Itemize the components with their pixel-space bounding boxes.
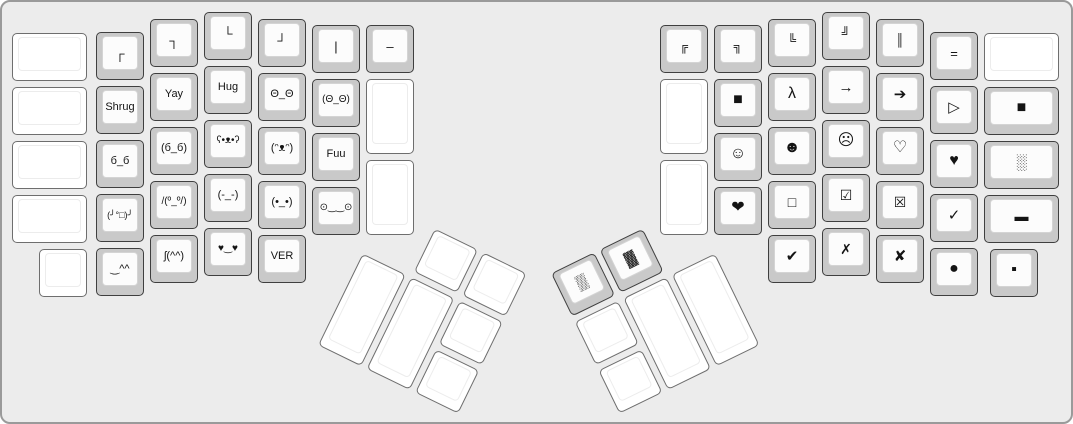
- key-heart-eyes[interactable]: ♥‿♥: [204, 228, 252, 276]
- key-square-white[interactable]: □: [768, 181, 816, 229]
- keycap-legend: ╝: [842, 27, 851, 39]
- keycap-top: ☹: [828, 124, 864, 158]
- key-neutral-face[interactable]: (•_•): [258, 181, 306, 229]
- key-equals[interactable]: =: [930, 32, 978, 80]
- keycap-top: (-_-): [210, 178, 246, 212]
- keycap-top: ┌: [102, 36, 138, 70]
- key-hug[interactable]: Hug: [204, 66, 252, 114]
- key-blank[interactable]: [12, 87, 87, 135]
- key-double-corner-top-right[interactable]: ╗: [714, 25, 762, 73]
- key-blank[interactable]: [39, 249, 87, 297]
- keycap-top: [45, 253, 81, 287]
- keycap-top: (ᵔᴥᵔ): [264, 131, 300, 165]
- keycap-top: λ: [774, 77, 810, 111]
- keycap-legend: ░: [1016, 155, 1027, 170]
- key-double-corner-bottom-left[interactable]: ╚: [768, 19, 816, 67]
- key-yay[interactable]: Yay: [150, 73, 198, 121]
- keycap-top: (•_•): [264, 185, 300, 219]
- keycap-top: |: [318, 29, 354, 63]
- keyboard-canvas: ┌Shrugб_б(╯°□)╯‿^^┐Yay(б_б)/(º_º/)ʃ(^^)└…: [0, 0, 1073, 424]
- key-blank[interactable]: [12, 141, 87, 189]
- keycap-top: /(º_º/): [156, 185, 192, 219]
- key-blank[interactable]: [366, 79, 414, 154]
- keycap-legend: ☺: [730, 146, 746, 162]
- keycap-top: Yay: [156, 77, 192, 111]
- keycap-top: ⊙‿‿⊙: [318, 191, 354, 225]
- key-double-corner-top-left[interactable]: ╔: [660, 25, 708, 73]
- key-black-square[interactable]: ■: [714, 79, 762, 127]
- keycap-top: [606, 356, 653, 402]
- keycap-top: [18, 91, 81, 125]
- key-worried-face[interactable]: ⊙‿‿⊙: [312, 187, 360, 235]
- key-black-square-2[interactable]: ■: [984, 87, 1059, 135]
- keycap-top: ✗: [828, 232, 864, 266]
- key-blank[interactable]: [12, 33, 87, 81]
- keycap-top: ╝: [828, 16, 864, 50]
- keycap-legend: (б_б): [161, 143, 187, 154]
- key-shrug-face[interactable]: ʃ(^^): [150, 235, 198, 283]
- keycap-legend: ╚: [788, 34, 797, 46]
- keycap-legend: Yay: [165, 89, 183, 100]
- keycap-top: ▬: [990, 199, 1053, 233]
- keycap-legend: ┌: [115, 47, 124, 60]
- keycap-legend: ʃ(^^): [164, 251, 184, 262]
- keycap-top: →: [828, 70, 864, 104]
- keycap-legend: →: [839, 80, 854, 95]
- key-stare-face-parens[interactable]: (Θ_Θ): [312, 79, 360, 127]
- key-happy-bear[interactable]: (ᵔᴥᵔ): [258, 127, 306, 175]
- key-table-unflip[interactable]: /(º_º/): [150, 181, 198, 229]
- keycap-legend: /(º_º/): [161, 197, 186, 207]
- keycap-top: (╯°□)╯: [102, 198, 138, 232]
- keycap-top: ➔: [882, 77, 918, 111]
- keycap-top: [472, 259, 519, 305]
- key-square-small-black[interactable]: ▪: [990, 249, 1038, 297]
- key-heart-heavy[interactable]: ❤: [714, 187, 762, 235]
- keycap-legend: =: [950, 47, 958, 60]
- key-shade-light[interactable]: ░: [984, 141, 1059, 189]
- keycap-top: ☺: [720, 137, 756, 171]
- keycap-legend: VER: [271, 251, 294, 262]
- keycap-top: ╚: [774, 23, 810, 57]
- keycap-legend: ☹: [838, 133, 855, 149]
- key-blank[interactable]: [660, 79, 708, 154]
- keycap-top: Θ_Θ: [264, 77, 300, 111]
- key-double-vertical[interactable]: ║: [876, 19, 924, 67]
- key-x-heavy[interactable]: ✘: [876, 235, 924, 283]
- key-corner-bottom-left[interactable]: └: [204, 12, 252, 60]
- keycap-top: Hug: [210, 70, 246, 104]
- keycap-top: [582, 307, 629, 353]
- keycap-legend: ▬: [1015, 209, 1029, 223]
- keycap-legend: ╔: [680, 40, 689, 52]
- key-smiley-black[interactable]: ☻: [768, 127, 816, 175]
- keycap-top: Fuu: [318, 137, 354, 171]
- keycap-top: [990, 37, 1053, 71]
- key-corner-top-left[interactable]: ┌: [96, 32, 144, 80]
- keycap-top: [666, 83, 702, 144]
- keycap-top: ░: [990, 145, 1053, 179]
- key-shrug[interactable]: Shrug: [96, 86, 144, 134]
- keycap-legend: ┐: [169, 34, 178, 47]
- key-circle-black[interactable]: ●: [930, 248, 978, 296]
- keycap-top: –: [372, 29, 408, 63]
- keycap-legend: ●: [949, 261, 959, 277]
- key-version[interactable]: VER: [258, 235, 306, 283]
- key-annoyed-face[interactable]: (-_-): [204, 174, 252, 222]
- key-squint-face-parens[interactable]: (б_б): [150, 127, 198, 175]
- keycap-top: └: [210, 16, 246, 50]
- keycap-legend: (╯°□)╯: [107, 211, 133, 220]
- key-dash[interactable]: –: [366, 25, 414, 73]
- keycap-top: ■: [990, 91, 1053, 125]
- key-blank[interactable]: [12, 195, 87, 243]
- keycap-top: ☻: [774, 131, 810, 165]
- keycap-top: [372, 83, 408, 144]
- key-corner-bottom-right[interactable]: ┘: [258, 19, 306, 67]
- key-fuu[interactable]: Fuu: [312, 133, 360, 181]
- key-lambda[interactable]: λ: [768, 73, 816, 121]
- key-vertical-bar[interactable]: |: [312, 25, 360, 73]
- keycap-legend: ▪: [1011, 262, 1017, 278]
- keycap-top: [449, 307, 496, 353]
- keycap-legend: ┘: [277, 34, 286, 47]
- key-heart-white[interactable]: ♡: [876, 127, 924, 175]
- keycap-legend: ✔: [786, 249, 799, 264]
- key-stare-face[interactable]: Θ_Θ: [258, 73, 306, 121]
- keycap-legend: ♥‿♥: [218, 244, 238, 254]
- keycap-legend: ‿^^: [110, 264, 129, 275]
- key-frown-face[interactable]: ☹: [822, 120, 870, 168]
- keycap-top: ✓: [936, 198, 972, 232]
- keycap-legend: ʕ•ᴥ•ʔ: [216, 136, 239, 146]
- keycap-top: ╗: [720, 29, 756, 63]
- keycap-top: ☒: [882, 185, 918, 219]
- keycap-top: [18, 199, 81, 233]
- key-double-corner-bottom-right[interactable]: ╝: [822, 12, 870, 60]
- key-bear-face[interactable]: ʕ•ᴥ•ʔ: [204, 120, 252, 168]
- keycap-top: [425, 356, 472, 402]
- keycap-top: VER: [264, 239, 300, 273]
- key-check[interactable]: ✓: [930, 194, 978, 242]
- keycap-top: ✘: [882, 239, 918, 273]
- keycap-top: ┐: [156, 23, 192, 57]
- keycap-top: [18, 145, 81, 179]
- keycap-legend: □: [788, 195, 796, 209]
- keycap-legend: ⊙‿‿⊙: [320, 203, 353, 213]
- keycap-top: [18, 37, 81, 71]
- keycap-legend: (•_•): [271, 197, 292, 208]
- keycap-top: ʃ(^^): [156, 239, 192, 273]
- keycap-legend: └: [223, 27, 232, 40]
- keycap-legend: ✗: [840, 242, 852, 256]
- keycap-legend: –: [386, 40, 393, 53]
- keycap-legend: Θ_Θ: [270, 89, 293, 100]
- keycap-legend: Hug: [218, 82, 238, 93]
- keycap-top: ♥‿♥: [210, 232, 246, 266]
- key-triangle-right[interactable]: ▷: [930, 86, 978, 134]
- keycap-legend: ▷: [948, 100, 960, 115]
- keycap-top: ▓: [607, 235, 654, 281]
- keycap-legend: ☒: [894, 195, 907, 209]
- keycap-top: ╔: [666, 29, 702, 63]
- keycap-top: ❤: [720, 191, 756, 225]
- keycap-legend: ☑: [840, 188, 853, 202]
- keycap-top: ▒: [558, 259, 605, 305]
- keycap-legend: (ᵔᴥᵔ): [271, 143, 293, 154]
- keycap-legend: ♥: [949, 153, 959, 169]
- keycap-top: ‿^^: [102, 252, 138, 286]
- keycap-top: (Θ_Θ): [318, 83, 354, 117]
- key-arrow-right-heavy[interactable]: ➔: [876, 73, 924, 121]
- keycap-top: ☑: [828, 178, 864, 212]
- keycap-legend: Shrug: [105, 102, 134, 113]
- keycap-top: ▷: [936, 90, 972, 124]
- keycap-legend: (-_-): [218, 190, 239, 201]
- keycap-top: ║: [882, 23, 918, 57]
- keycap-top: ●: [936, 252, 972, 286]
- keycap-top: ▪: [996, 253, 1032, 287]
- keycap-top: ♡: [882, 131, 918, 165]
- keycap-legend: ■: [733, 92, 743, 108]
- key-smile-carets[interactable]: ‿^^: [96, 248, 144, 296]
- keycap-legend: ╗: [734, 40, 743, 52]
- keycap-top: ✔: [774, 239, 810, 273]
- keycap-legend: ■: [1017, 100, 1027, 116]
- key-table-flip[interactable]: (╯°□)╯: [96, 194, 144, 242]
- key-rectangle-black[interactable]: ▬: [984, 195, 1059, 243]
- keycap-legend: ║: [896, 34, 905, 46]
- keycap-legend: (Θ_Θ): [322, 95, 350, 105]
- keycap-legend: б_б: [111, 156, 130, 167]
- keycap-top: ʕ•ᴥ•ʔ: [210, 124, 246, 158]
- keycap-legend: ▒: [574, 273, 590, 291]
- key-ballot-x[interactable]: ✗: [822, 228, 870, 276]
- keycap-legend: ♡: [893, 140, 907, 156]
- keycap-top: ■: [720, 83, 756, 117]
- key-blank[interactable]: [984, 33, 1059, 81]
- keycap-top: [424, 235, 471, 281]
- keycap-legend: ➔: [894, 87, 907, 102]
- key-smiley-white[interactable]: ☺: [714, 133, 762, 181]
- keycap-top: (б_б): [156, 131, 192, 165]
- keycap-top: б_б: [102, 144, 138, 178]
- keycap-legend: ☻: [784, 140, 801, 156]
- key-checkbox-checked[interactable]: ☑: [822, 174, 870, 222]
- keycap-legend: |: [334, 40, 337, 53]
- key-check-heavy[interactable]: ✔: [768, 235, 816, 283]
- keycap-top: ♥: [936, 144, 972, 178]
- keycap-legend: ▓: [622, 249, 638, 267]
- key-checkbox-x[interactable]: ☒: [876, 181, 924, 229]
- keycap-legend: ✓: [948, 208, 961, 223]
- keycap-legend: λ: [788, 86, 796, 102]
- keycap-top: □: [774, 185, 810, 219]
- keycap-top: =: [936, 36, 972, 70]
- keycap-legend: ❤: [731, 200, 744, 216]
- key-arrow-right[interactable]: →: [822, 66, 870, 114]
- key-heart-black[interactable]: ♥: [930, 140, 978, 188]
- keycap-legend: Fuu: [327, 149, 346, 160]
- key-squint-face[interactable]: б_б: [96, 140, 144, 188]
- keycap-top: ┘: [264, 23, 300, 57]
- key-corner-top-right[interactable]: ┐: [150, 19, 198, 67]
- keycap-legend: ✘: [894, 249, 907, 264]
- keycap-top: Shrug: [102, 90, 138, 124]
